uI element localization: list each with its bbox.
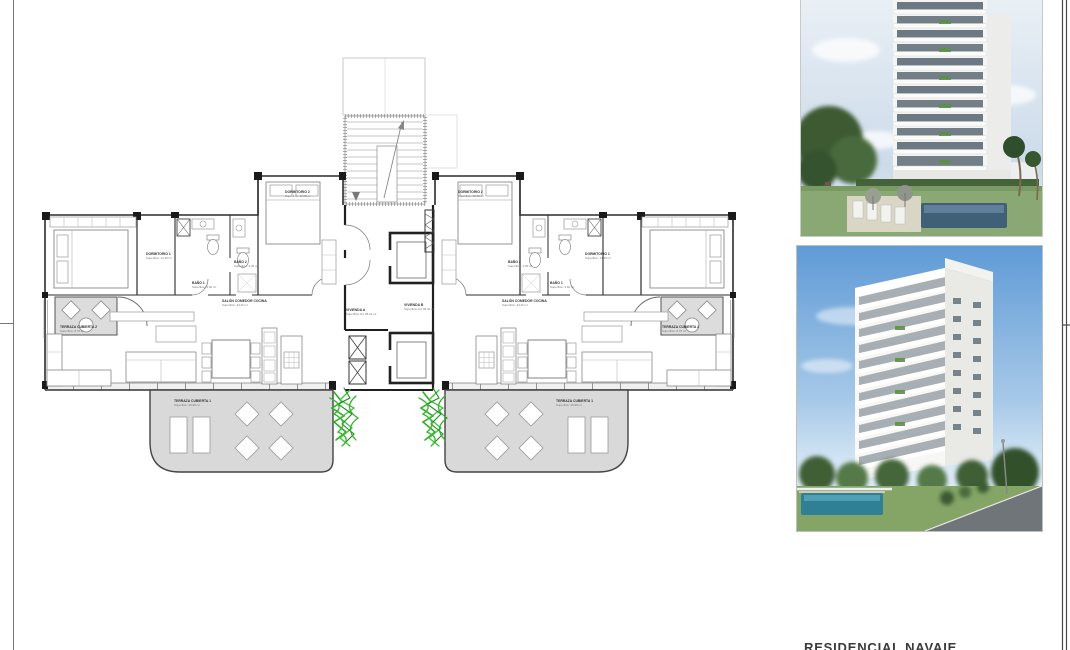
- project-caption: RESIDENCIAL NAVAIE: [804, 640, 1054, 650]
- svg-text:Superficie: 34,40 m²: Superficie: 34,40 m²: [502, 303, 528, 307]
- svg-text:Superficie: 4,60 m²: Superficie: 4,60 m²: [192, 285, 216, 289]
- svg-text:Superficie: 20,98 m²: Superficie: 20,98 m²: [174, 403, 200, 407]
- svg-text:Superficie: 14,45 m²: Superficie: 14,45 m²: [146, 256, 172, 260]
- unit-labels: VIVIENDA A Superficie útil: 95,32 m² VIV…: [346, 303, 434, 316]
- svg-text:Superficie: 8,76 m²: Superficie: 8,76 m²: [60, 329, 84, 333]
- svg-text:Superficie: 4,35 m²: Superficie: 4,35 m²: [508, 264, 532, 268]
- svg-text:Superficie: 20,98 m²: Superficie: 20,98 m²: [556, 403, 582, 407]
- svg-text:Superficie: 8,76 m²: Superficie: 8,76 m²: [662, 329, 686, 333]
- plant-right: [419, 388, 447, 446]
- elevator-2: [388, 333, 433, 383]
- svg-text:Superficie útil: 95,32 m²: Superficie útil: 95,32 m²: [346, 312, 376, 316]
- svg-text:Superficie: 34,40 m²: Superficie: 34,40 m²: [222, 303, 248, 307]
- svg-text:Superficie: 4,60 m²: Superficie: 4,60 m²: [550, 285, 574, 289]
- svg-text:Superficie útil: 95,32 m²: Superficie útil: 95,32 m²: [404, 307, 434, 311]
- svg-text:Superficie: 4,35 m²: Superficie: 4,35 m²: [234, 264, 258, 268]
- terrace-right: [445, 390, 628, 472]
- render-photo-tower-corner: [796, 245, 1043, 532]
- plant-left: [330, 388, 358, 446]
- pool: [799, 491, 885, 515]
- drawing-sheet: DORMITORIO 1 Superficie: 14,45 m² DORMIT…: [0, 0, 1070, 650]
- svg-text:Superficie: 14,45 m²: Superficie: 14,45 m²: [585, 256, 611, 260]
- pool: [921, 203, 1007, 228]
- stair-core: [345, 116, 425, 204]
- svg-text:Superficie: 12,05 m²: Superficie: 12,05 m²: [285, 194, 311, 198]
- svg-text:Superficie: 12,05 m²: Superficie: 12,05 m²: [458, 194, 484, 198]
- right-wing: [432, 172, 736, 390]
- elevator-1: [388, 233, 433, 283]
- tower-day: [893, 0, 1011, 184]
- render-photo-tower-pool: [800, 0, 1043, 237]
- tower-corner: [855, 258, 993, 480]
- core: [345, 205, 434, 390]
